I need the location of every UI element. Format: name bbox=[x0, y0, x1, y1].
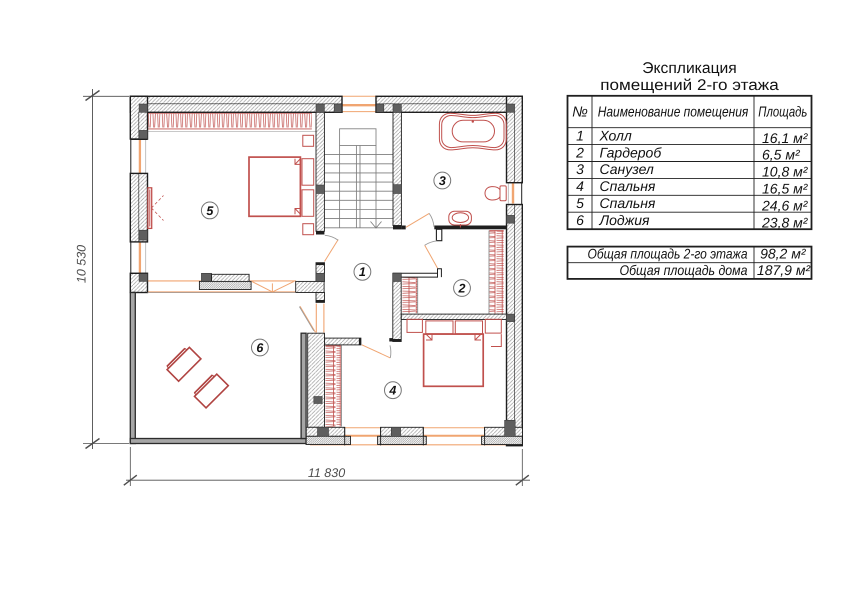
svg-text:1: 1 bbox=[359, 265, 366, 279]
svg-text:Холл: Холл bbox=[599, 127, 632, 143]
svg-text:Площадь: Площадь bbox=[758, 105, 807, 121]
svg-text:10,8 м²: 10,8 м² bbox=[762, 164, 809, 180]
svg-text:Гардероб: Гардероб bbox=[600, 144, 663, 160]
svg-text:11 830: 11 830 bbox=[308, 466, 345, 480]
svg-text:2: 2 bbox=[575, 144, 584, 160]
svg-text:Спальня: Спальня bbox=[600, 178, 656, 194]
svg-text:16,5 м²: 16,5 м² bbox=[762, 181, 809, 197]
svg-text:187,9 м²: 187,9 м² bbox=[757, 262, 812, 278]
svg-text:3: 3 bbox=[439, 174, 446, 188]
svg-text:6,5 м²: 6,5 м² bbox=[762, 147, 801, 163]
svg-text:2: 2 bbox=[458, 281, 466, 295]
svg-text:№: № bbox=[572, 105, 588, 121]
svg-text:5: 5 bbox=[576, 195, 584, 211]
svg-text:помещений 2-го этажа: помещений 2-го этажа bbox=[600, 77, 779, 94]
svg-text:10 530: 10 530 bbox=[75, 245, 89, 283]
svg-text:Общая площадь 2-го этажа: Общая площадь 2-го этажа bbox=[588, 246, 748, 262]
svg-text:4: 4 bbox=[388, 384, 396, 398]
svg-text:24,6 м²: 24,6 м² bbox=[761, 197, 809, 213]
svg-text:3: 3 bbox=[576, 161, 584, 177]
svg-text:Общая площадь дома: Общая площадь дома bbox=[620, 262, 748, 278]
svg-text:23,8 м²: 23,8 м² bbox=[761, 214, 809, 230]
svg-text:6: 6 bbox=[256, 341, 264, 355]
svg-text:Экспликация: Экспликация bbox=[642, 60, 737, 77]
svg-text:6: 6 bbox=[576, 212, 584, 228]
svg-text:Санузел: Санузел bbox=[600, 161, 654, 177]
svg-text:98,2 м²: 98,2 м² bbox=[760, 246, 807, 262]
svg-text:16,1 м²: 16,1 м² bbox=[762, 130, 809, 146]
svg-text:4: 4 bbox=[576, 178, 584, 194]
svg-text:Наименование помещения: Наименование помещения bbox=[598, 105, 749, 121]
svg-text:Лоджия: Лоджия bbox=[599, 212, 651, 228]
svg-text:5: 5 bbox=[206, 204, 214, 218]
svg-text:Спальня: Спальня bbox=[600, 195, 656, 211]
svg-text:1: 1 bbox=[576, 127, 584, 143]
